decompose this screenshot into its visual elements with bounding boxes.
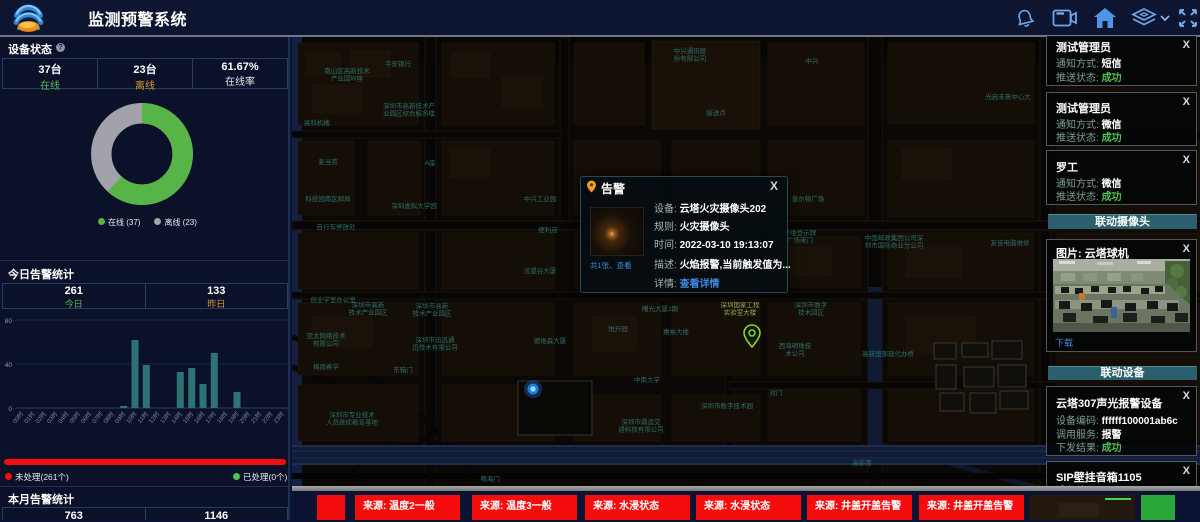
svg-text:21时: 21时 [249,410,263,425]
svg-text:深圳市高新技术产业园区综合服务楼: 深圳市高新技术产业园区综合服务楼 [383,101,436,118]
svg-text:05时: 05时 [68,410,82,425]
svg-text:粤海门: 粤海门 [480,474,500,483]
svg-text:23时: 23时 [272,410,286,425]
svg-text:德维森大厦: 德维森大厦 [534,336,567,345]
svg-text:高新南: 高新南 [852,458,872,467]
svg-text:友佳电脑维修: 友佳电脑维修 [991,238,1031,247]
svg-text:03时: 03时 [45,410,59,425]
svg-text:曙光大厦2期: 曙光大厦2期 [642,304,679,313]
svg-text:80: 80 [5,318,13,325]
svg-text:惠裕大楼: 惠裕大楼 [663,327,690,336]
svg-text:15时: 15时 [181,410,195,425]
svg-text:悦升园: 悦升园 [608,324,628,333]
svg-text:22时: 22时 [260,410,274,425]
svg-text:深圳市专业技术人员继续教育基地: 深圳市专业技术人员继续教育基地 [326,410,379,427]
svg-text:18时: 18时 [215,410,229,425]
svg-text:深圳虚拟大学园: 深圳虚拟大学园 [391,201,437,210]
svg-text:深圳市高新技术产业园区: 深圳市高新技术产业园区 [413,301,453,318]
svg-text:02时: 02时 [34,410,48,425]
svg-text:高科机楼: 高科机楼 [304,118,331,127]
svg-text:科技园南区邮局: 科技园南区邮局 [305,194,351,203]
svg-text:深圳市数字技术园区: 深圳市数字技术园区 [795,300,828,317]
svg-text:13时: 13时 [158,410,172,425]
svg-text:接送点: 接送点 [706,108,726,117]
svg-text:中兴: 中兴 [806,56,820,65]
svg-text:0: 0 [8,406,12,413]
svg-text:创业学室办公室: 创业学室办公室 [310,295,356,304]
svg-text:深圳市高新技术产业园区: 深圳市高新技术产业园区 [349,300,389,317]
svg-text:平安银行: 平安银行 [385,59,412,68]
svg-text:迅望谷大厦: 迅望谷大厦 [524,266,557,275]
svg-text:对门: 对门 [770,388,783,397]
svg-text:20时: 20时 [238,410,252,425]
svg-text:东箱门: 东箱门 [393,365,413,374]
svg-text:麦当劳: 麦当劳 [318,157,338,166]
svg-text:中兴通讯股份有限公司: 中兴通讯股份有限公司 [674,46,707,63]
svg-text:07时: 07时 [90,410,104,425]
svg-text:梅周希学: 梅周希学 [313,362,340,371]
svg-text:01时: 01时 [22,410,36,425]
svg-text:便利店: 便利店 [538,225,558,234]
svg-text:00时: 00时 [11,410,25,425]
svg-text:04时: 04时 [56,410,70,425]
svg-text:中南大学: 中南大学 [634,375,661,384]
svg-text:A座: A座 [425,158,436,167]
svg-text:06时: 06时 [79,410,93,425]
svg-text:17时: 17时 [204,410,218,425]
svg-text:08时: 08时 [102,410,116,425]
svg-text:高新国部现代办桥: 高新国部现代办桥 [862,349,915,358]
svg-text:自行车停放处: 自行车停放处 [317,222,357,231]
svg-text:11时: 11时 [136,410,150,425]
svg-text:12时: 12时 [147,410,161,425]
svg-text:中国邮政集团公司深圳市国际商业分公司: 中国邮政集团公司深圳市国际商业分公司 [865,233,924,250]
svg-text:09时: 09时 [113,410,127,425]
svg-text:深圳市数字技术园: 深圳市数字技术园 [701,401,753,410]
svg-text:光启未来中心大: 光启未来中心大 [985,92,1031,101]
svg-text:深圳市鼎运交通科技有限公司: 深圳市鼎运交通科技有限公司 [618,417,664,434]
svg-text:深圳国家工程实验室大楼: 深圳国家工程实验室大楼 [721,300,761,317]
svg-text:40: 40 [5,362,13,369]
svg-text:10时: 10时 [124,410,138,425]
svg-text:16时: 16时 [192,410,206,425]
svg-text:查尔顿广场: 查尔顿广场 [792,194,825,203]
svg-text:19时: 19时 [226,410,240,425]
svg-text:14时: 14时 [170,410,184,425]
svg-text:深圳市迅迅通迅技术有限公司: 深圳市迅迅通迅技术有限公司 [412,335,458,352]
svg-text:中兴工业园: 中兴工业园 [524,194,557,203]
svg-text:摩维登示牌广场南门: 摩维登示牌广场南门 [784,228,817,245]
